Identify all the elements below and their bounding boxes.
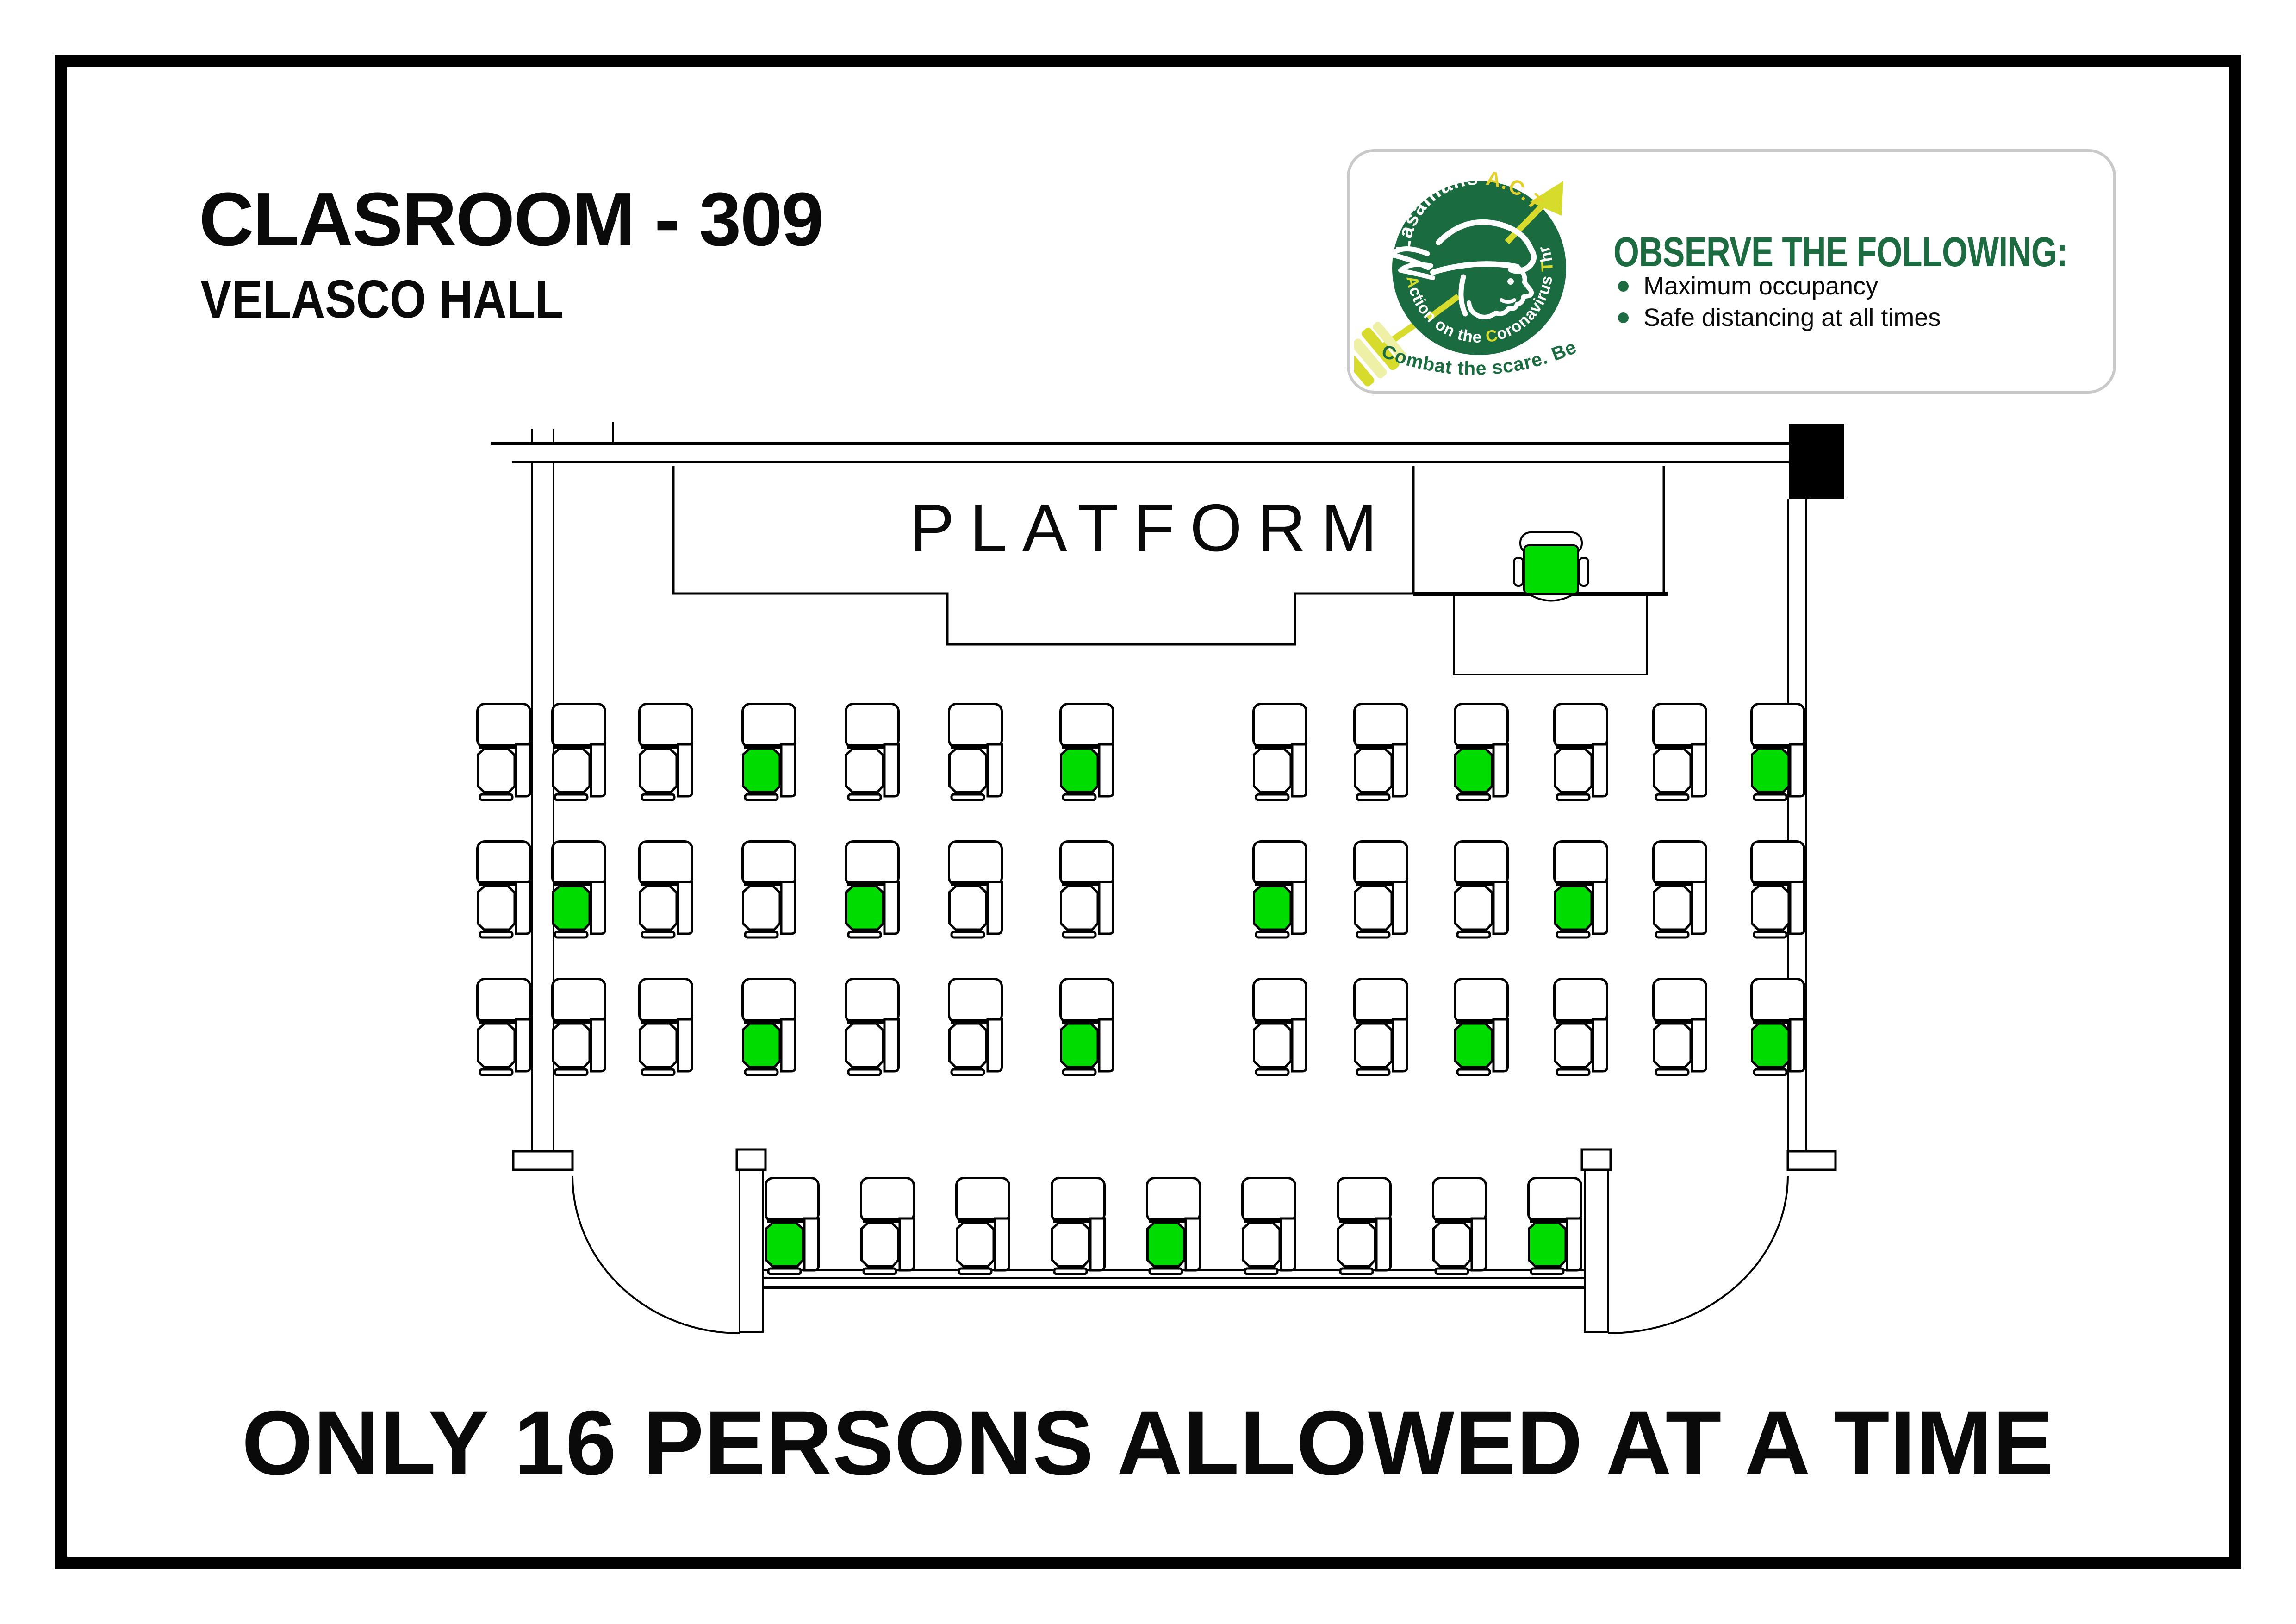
seat-blocked — [478, 842, 530, 938]
door-leaf — [1585, 1170, 1608, 1332]
seat-allowed — [1752, 979, 1804, 1075]
seat-allowed — [766, 1178, 819, 1274]
seat-blocked — [553, 979, 605, 1075]
seat-blocked — [949, 979, 1002, 1075]
seat-blocked — [949, 842, 1002, 938]
door-right — [1582, 1149, 1836, 1333]
door-left — [513, 1149, 765, 1333]
seat-blocked — [553, 704, 605, 800]
seat-allowed — [1455, 704, 1508, 800]
door-swing-arc — [572, 1176, 740, 1333]
seat-blocked — [1243, 1178, 1295, 1274]
door-swing-arc — [1608, 1176, 1788, 1333]
seat-allowed — [1061, 704, 1114, 800]
seat-allowed — [1529, 1178, 1581, 1274]
door-leaf — [740, 1170, 763, 1332]
seat-allowed — [1061, 979, 1114, 1075]
seat-allowed — [743, 704, 796, 800]
platform: PLATFORM — [673, 466, 1668, 644]
seat-blocked — [861, 1178, 914, 1274]
seat-blocked — [1555, 704, 1607, 800]
seat-blocked — [1355, 704, 1407, 800]
floor-plan: PLATFORM — [0, 0, 2296, 1624]
seat-blocked — [1654, 704, 1706, 800]
column-block — [1789, 424, 1844, 499]
seat-allowed — [846, 842, 899, 938]
seat-allowed — [553, 842, 605, 938]
occupancy-limit-text: ONLY 16 PERSONS ALLOWED AT A TIME — [242, 1397, 2054, 1489]
seat-blocked — [1052, 1178, 1105, 1274]
seat-blocked — [743, 842, 796, 938]
poster-page: { "page": { "title": "CLASROOM - 309", "… — [0, 0, 2296, 1624]
seat-allowed — [1455, 979, 1508, 1075]
seat-blocked — [478, 979, 530, 1075]
seat-allowed — [1752, 704, 1804, 800]
seat-blocked — [1433, 1178, 1486, 1274]
seat-blocked — [1254, 704, 1307, 800]
seat-allowed — [1555, 842, 1607, 938]
seat-allowed — [1147, 1178, 1200, 1274]
seat-blocked — [1654, 842, 1706, 938]
seat-blocked — [1254, 979, 1307, 1075]
seat-allowed — [1254, 842, 1307, 938]
seat-blocked — [1752, 842, 1804, 938]
teacher-desk — [1454, 595, 1647, 675]
seat-blocked — [640, 979, 692, 1075]
teacher-seat — [1524, 545, 1578, 594]
seat-blocked — [1061, 842, 1114, 938]
seat-blocked — [957, 1178, 1009, 1274]
seat-blocked — [846, 979, 899, 1075]
seat-blocked — [640, 704, 692, 800]
platform-label: PLATFORM — [910, 490, 1393, 565]
teacher-chair — [1514, 532, 1588, 601]
seat-blocked — [640, 842, 692, 938]
seat-blocked — [1654, 979, 1706, 1075]
partial-seats — [478, 704, 530, 1075]
seat-blocked — [1455, 842, 1508, 938]
seat-blocked — [1355, 842, 1407, 938]
seat-blocked — [1338, 1178, 1391, 1274]
seat-blocked — [1355, 979, 1407, 1075]
seat-allowed — [743, 979, 796, 1075]
seat-blocked — [846, 704, 899, 800]
seat-blocked — [478, 704, 530, 800]
seat-blocked — [1555, 979, 1607, 1075]
seat-blocked — [949, 704, 1002, 800]
